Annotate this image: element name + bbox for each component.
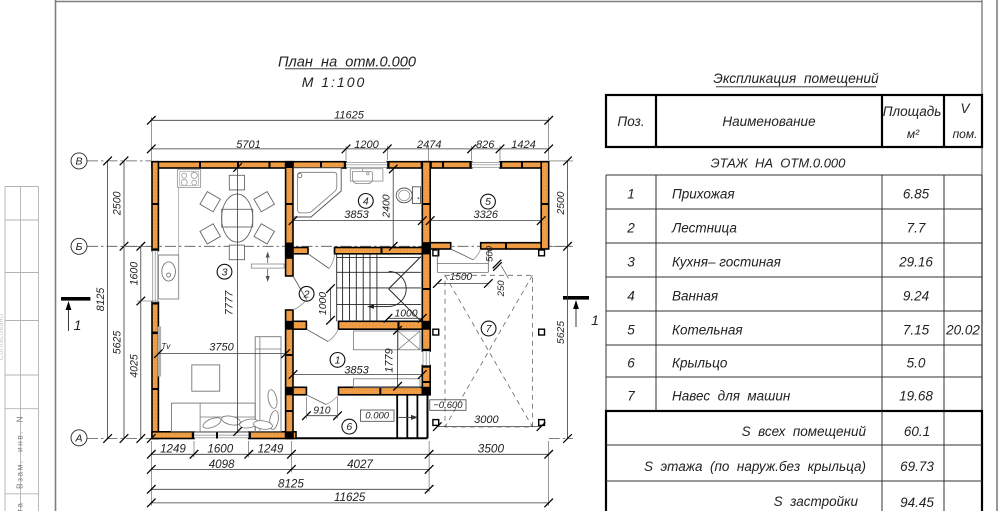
svg-text:19.68: 19.68 (899, 389, 933, 404)
svg-text:4025: 4025 (128, 354, 140, 378)
svg-text:3: 3 (627, 255, 635, 270)
svg-text:5625: 5625 (112, 331, 124, 355)
svg-text:Площадь: Площадь (883, 104, 942, 119)
svg-text:4: 4 (627, 289, 635, 304)
svg-text:2: 2 (626, 221, 635, 236)
svg-text:М 1:100: М 1:100 (302, 74, 367, 90)
svg-text:2474: 2474 (416, 139, 441, 151)
svg-text:1000: 1000 (394, 308, 417, 319)
svg-text:20.02: 20.02 (945, 323, 980, 338)
svg-text:В: В (75, 156, 82, 168)
svg-text:Б: Б (76, 241, 83, 253)
svg-text:500: 500 (484, 245, 495, 262)
svg-text:Поз.: Поз. (617, 114, 644, 129)
svg-text:5.0: 5.0 (907, 356, 926, 371)
svg-text:S застройки: S застройки (774, 494, 859, 509)
svg-text:11625: 11625 (334, 491, 366, 504)
svg-text:9.24: 9.24 (903, 289, 929, 304)
svg-text:1424: 1424 (511, 139, 535, 151)
svg-text:910: 910 (313, 405, 331, 416)
svg-text:1: 1 (627, 187, 635, 202)
svg-text:3326: 3326 (474, 209, 499, 221)
svg-text:3853: 3853 (344, 364, 369, 376)
svg-text:5: 5 (627, 323, 635, 338)
svg-text:7: 7 (627, 389, 635, 404)
svg-text:Согласовано: Согласовано (0, 314, 5, 361)
svg-text:2: 2 (303, 288, 310, 300)
svg-text:1000: 1000 (318, 292, 329, 315)
svg-text:5625: 5625 (556, 321, 567, 344)
svg-text:250: 250 (496, 280, 507, 298)
svg-text:А: А (74, 433, 82, 445)
svg-text:5701: 5701 (236, 139, 260, 151)
svg-text:Котельная: Котельная (672, 323, 743, 338)
svg-text:Наименование: Наименование (722, 114, 815, 129)
svg-text:пом.: пом. (953, 127, 978, 141)
svg-text:План на отм.0.000: План на отм.0.000 (278, 54, 416, 70)
svg-text:3750: 3750 (209, 342, 234, 354)
svg-text:4027: 4027 (347, 458, 373, 471)
svg-text:−0.600: −0.600 (433, 400, 463, 411)
svg-text:69.73: 69.73 (900, 459, 934, 474)
svg-text:5: 5 (485, 196, 491, 208)
svg-text:м²: м² (907, 127, 920, 141)
svg-text:4098: 4098 (209, 458, 235, 471)
svg-text:Крыльцо: Крыльцо (672, 356, 728, 371)
svg-text:60.1: 60.1 (904, 424, 930, 439)
svg-text:8125: 8125 (278, 478, 304, 491)
svg-text:Подп. и дата: Подп. и дата (15, 502, 25, 511)
svg-text:Ванная: Ванная (672, 289, 718, 304)
svg-text:3500: 3500 (478, 442, 505, 456)
svg-text:1: 1 (591, 312, 599, 328)
svg-text:2500: 2500 (112, 191, 124, 216)
svg-text:6: 6 (627, 356, 635, 371)
svg-text:1500: 1500 (450, 272, 473, 283)
svg-text:1600: 1600 (207, 443, 233, 456)
svg-text:S всех помещений: S всех помещений (742, 424, 867, 439)
svg-text:Экспликация помещений: Экспликация помещений (713, 71, 879, 86)
svg-text:1600: 1600 (128, 262, 140, 286)
svg-text:94.45: 94.45 (900, 495, 934, 510)
svg-text:Взам. инв. N: Взам. инв. N (15, 415, 25, 489)
svg-text:7.7: 7.7 (907, 221, 926, 236)
svg-text:0.000: 0.000 (365, 411, 389, 422)
svg-text:Навес для машин: Навес для машин (672, 389, 791, 404)
svg-text:Прихожая: Прихожая (672, 187, 735, 202)
svg-text:2500: 2500 (556, 191, 567, 215)
svg-text:826: 826 (476, 139, 495, 151)
svg-text:1779: 1779 (384, 348, 396, 372)
svg-text:6.85: 6.85 (903, 187, 930, 202)
svg-text:11625: 11625 (334, 110, 365, 122)
svg-text:Кухня– гостиная: Кухня– гостиная (672, 255, 781, 270)
svg-text:3: 3 (222, 266, 228, 278)
svg-text:3853: 3853 (344, 209, 369, 221)
svg-text:1200: 1200 (354, 139, 379, 151)
svg-text:1: 1 (335, 355, 341, 367)
svg-text:4: 4 (363, 196, 369, 208)
svg-text:1: 1 (74, 317, 82, 333)
svg-text:ЭТАЖ НА ОТМ.0.000: ЭТАЖ НА ОТМ.0.000 (711, 156, 847, 171)
svg-text:Лестница: Лестница (671, 221, 737, 236)
svg-text:8125: 8125 (95, 288, 107, 312)
svg-text:29.16: 29.16 (898, 255, 933, 270)
svg-text:3000: 3000 (474, 414, 499, 426)
svg-text:7.15: 7.15 (903, 323, 930, 338)
svg-text:S этажа (по наруж.без крыл: S этажа (по наруж.без крыльца) (644, 459, 866, 474)
svg-text:6: 6 (346, 421, 352, 433)
svg-text:1249: 1249 (160, 443, 186, 456)
svg-text:2400: 2400 (381, 194, 392, 218)
svg-text:1249: 1249 (258, 443, 284, 456)
svg-text:7777: 7777 (223, 290, 235, 315)
